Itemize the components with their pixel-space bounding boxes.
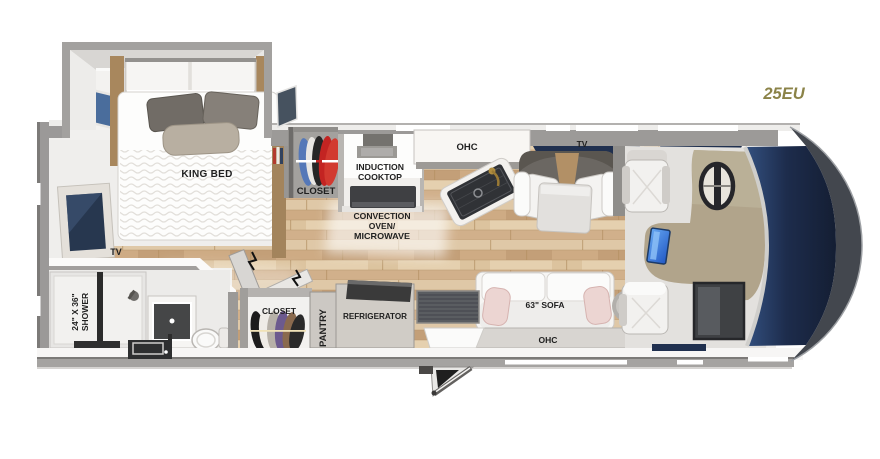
svg-text:CLOSET: CLOSET <box>297 186 336 197</box>
svg-text:24" X 36": 24" X 36" <box>70 293 80 330</box>
svg-text:TV: TV <box>577 139 588 149</box>
svg-text:TV: TV <box>110 247 122 257</box>
svg-text:63" SOFA: 63" SOFA <box>526 300 565 310</box>
svg-text:KING BED: KING BED <box>181 169 232 180</box>
svg-text:OHC: OHC <box>456 142 477 153</box>
svg-text:CLOSET: CLOSET <box>262 306 297 316</box>
svg-text:REFRIGERATOR: REFRIGERATOR <box>343 312 407 321</box>
svg-text:PANTRY: PANTRY <box>318 309 328 347</box>
svg-text:OHC: OHC <box>539 335 558 345</box>
svg-text:MICROWAVE: MICROWAVE <box>354 231 410 241</box>
svg-text:25EU: 25EU <box>762 85 805 103</box>
svg-text:CONVECTION: CONVECTION <box>354 211 411 221</box>
svg-text:SHOWER: SHOWER <box>80 293 90 331</box>
svg-text:COOKTOP: COOKTOP <box>358 172 402 182</box>
svg-text:OVEN/: OVEN/ <box>369 221 396 231</box>
svg-text:INDUCTION: INDUCTION <box>356 162 404 172</box>
